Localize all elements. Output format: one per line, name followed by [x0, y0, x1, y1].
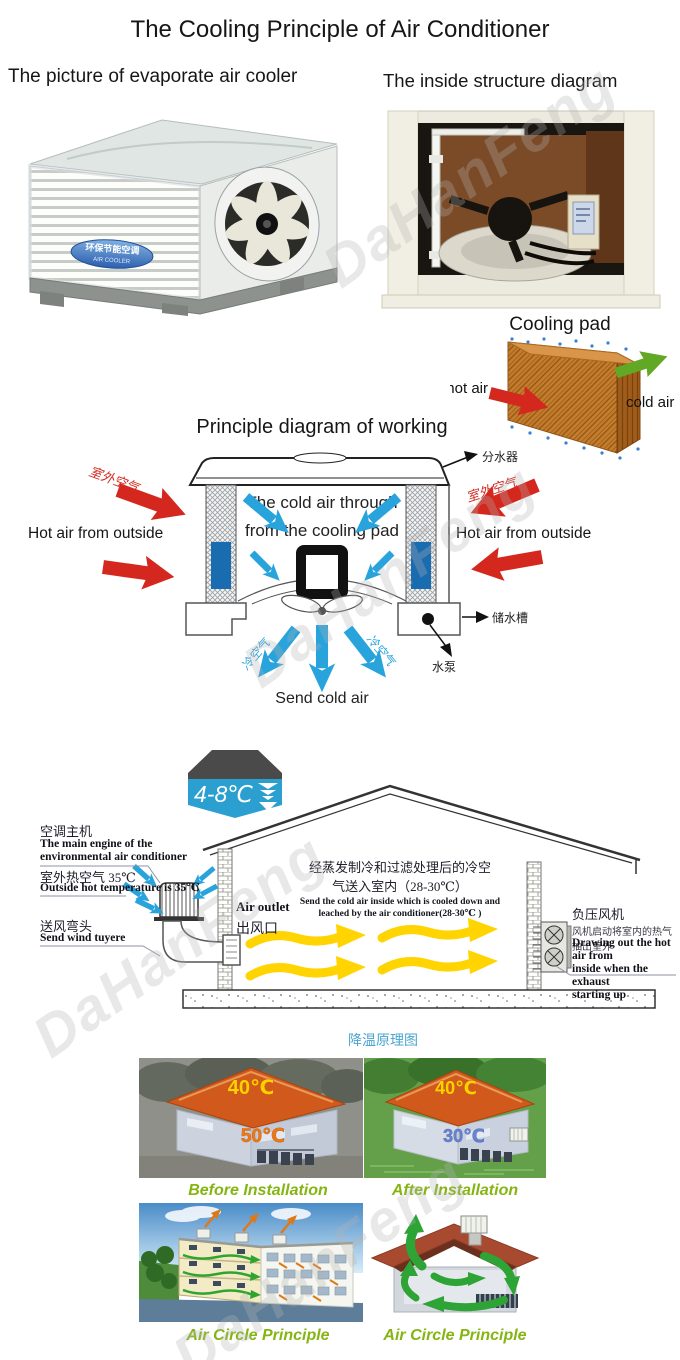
house-shell [372, 1224, 538, 1312]
building-air-circle-photo [139, 1203, 363, 1322]
control-box [568, 195, 599, 249]
before-installation-photo: 40℃ 50℃ [139, 1058, 363, 1178]
outside-temp-label-en: Outside hot temperature is 35℃ [40, 882, 200, 895]
evaporative-cooler-photo: 环保节能空调 AIR COOLER [12, 102, 347, 317]
fan-assembly [238, 545, 406, 615]
before-caption: Before Installation [148, 1182, 368, 1200]
before-roof-temp: 40℃ [228, 1077, 274, 1099]
engine-label-en-line1: The main engine of the [40, 838, 187, 851]
wall-cooler-icon [510, 1128, 528, 1141]
hot-air-left-label: Hot air from outside [28, 525, 163, 542]
tuyere-label-en: Send wind tuyere [40, 932, 125, 945]
hot-air-arrow-icon [468, 540, 545, 586]
cooling-diagram-caption: 降温原理图 [283, 1030, 483, 1050]
hot-air-right-label: Hot air from outside [456, 525, 591, 542]
structure-section-title: The inside structure diagram [383, 70, 617, 92]
exhaust-label-en-line1: Drawing out the hot air from [572, 937, 680, 963]
photo-section-title: The picture of evaporate air cooler [8, 66, 297, 88]
airflow-arrow-icon [382, 950, 498, 974]
page-title: The Cooling Principle of Air Conditioner [0, 16, 680, 44]
exhaust-label-en-line3: starting up [572, 989, 680, 1002]
water-pump-icon [422, 613, 434, 625]
water-pump-label: 水泵 [432, 660, 456, 674]
hot-air-label: hot air [450, 380, 488, 397]
cold-air-arrow-icon [359, 548, 398, 587]
principle-diagram: Principle diagram of working [0, 405, 680, 710]
before-inside-temp: 50℃ [241, 1126, 285, 1147]
exhaust-label-en: Drawing out the hot air from inside when… [572, 937, 680, 1002]
engine-label-en: The main engine of the environmental air… [40, 838, 187, 864]
house-air-circle-photo [364, 1212, 546, 1320]
send-cold-air-label: Send cold air [275, 690, 369, 707]
center-note-cn1: 经蒸发制冷和过滤处理后的冷空 [295, 858, 505, 877]
exhaust-label-cn: 负压风机 [572, 904, 624, 923]
air-outlet-label-cn: 出风口 [236, 918, 278, 938]
center-note-en1: Send the cold air inside which is cooled… [295, 896, 505, 908]
air-circle-caption-right: Air Circle Principle [364, 1327, 546, 1345]
air-outlet-label-en: Air outlet [236, 900, 290, 913]
water-distributor-callout: 分水器 [443, 450, 518, 467]
after-caption: After Installation [364, 1182, 546, 1200]
air-circle-caption-left: Air Circle Principle [148, 1327, 368, 1345]
cooling-pad-title: Cooling pad [460, 314, 660, 336]
airflow-arrow-icon [382, 918, 498, 942]
hot-air-arrow-icon [101, 550, 177, 594]
inner-text-line1: The cold air through [246, 493, 397, 512]
after-installation-photo: 40℃ 30℃ [364, 1058, 546, 1178]
inside-structure-photo [380, 103, 662, 310]
center-note-cn2: 气送入室内（28-30℃） [295, 877, 505, 896]
outdoor-air-cn-label: 室外空气 [87, 464, 143, 497]
center-note: 经蒸发制冷和过滤处理后的冷空 气送入室内（28-30℃） Send the co… [295, 858, 505, 920]
poster-page: DaHanFeng DaHanFeng DaHanFeng DaHanFeng … [0, 0, 680, 1360]
temp-badge-value: 4-8℃ [194, 781, 253, 807]
water-distributor-label: 分水器 [482, 450, 518, 464]
exhaust-label-en-line2: inside when the exhaust [572, 963, 680, 989]
engine-label-en-line2: environmental air conditioner [40, 851, 187, 864]
after-roof-temp: 40℃ [435, 1078, 477, 1098]
principle-title: Principle diagram of working [196, 416, 447, 438]
temp-badge: 4-8℃ [188, 750, 282, 818]
water-tank-callout: 储水槽 [462, 610, 528, 625]
airflow-arrow-icon [250, 956, 366, 980]
after-inside-temp: 30℃ [443, 1126, 485, 1146]
water-tank-label: 储水槽 [492, 610, 528, 625]
cold-air-arrow-icon [309, 625, 335, 692]
inner-text-line2: from the cooling pad [245, 521, 399, 540]
cabinet-base [382, 295, 660, 308]
cold-air-arrow-icon [247, 548, 286, 587]
center-note-en2: leached by the air conditioner(28-30℃ ) [295, 908, 505, 920]
